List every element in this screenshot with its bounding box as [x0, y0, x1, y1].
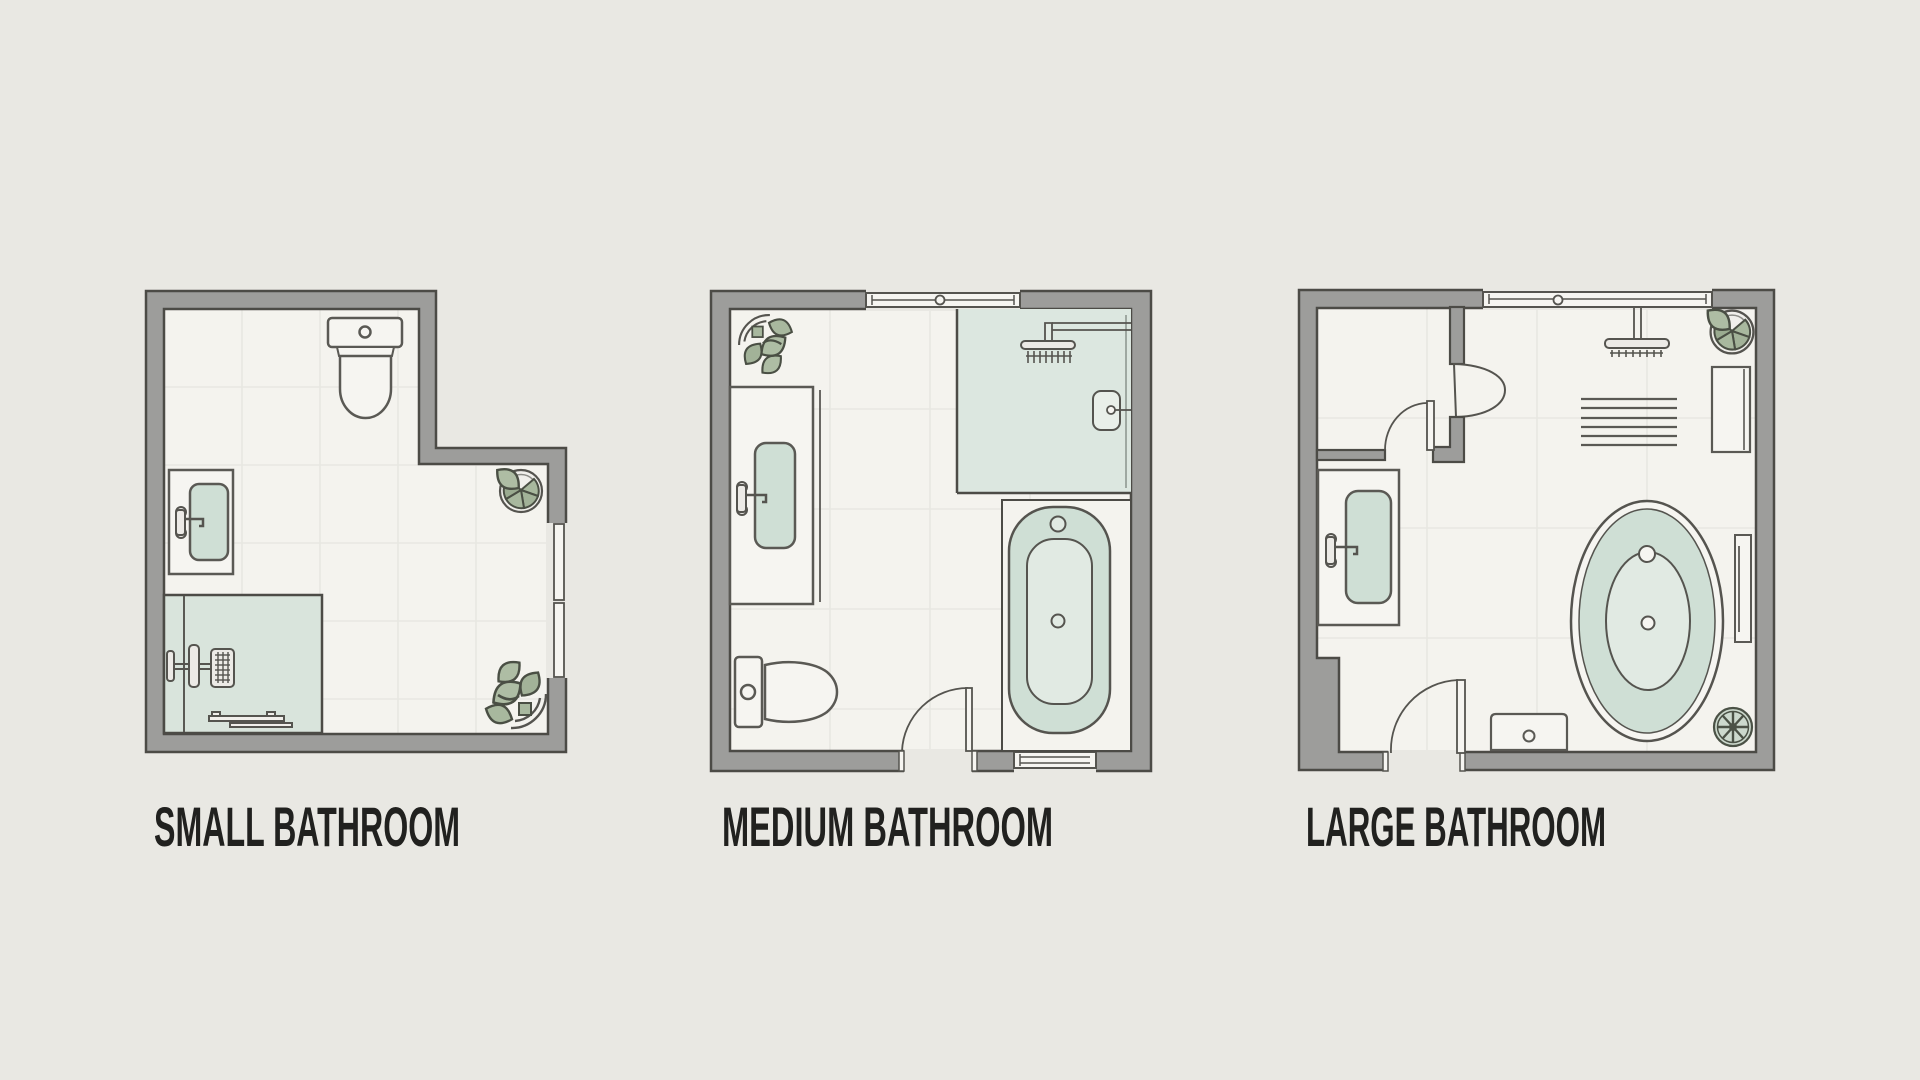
svg-text:SMALL BATHROOM: SMALL BATHROOM — [154, 795, 460, 858]
svg-text:LARGE BATHROOM: LARGE BATHROOM — [1306, 795, 1606, 858]
svg-text:MEDIUM BATHROOM: MEDIUM BATHROOM — [722, 795, 1053, 858]
